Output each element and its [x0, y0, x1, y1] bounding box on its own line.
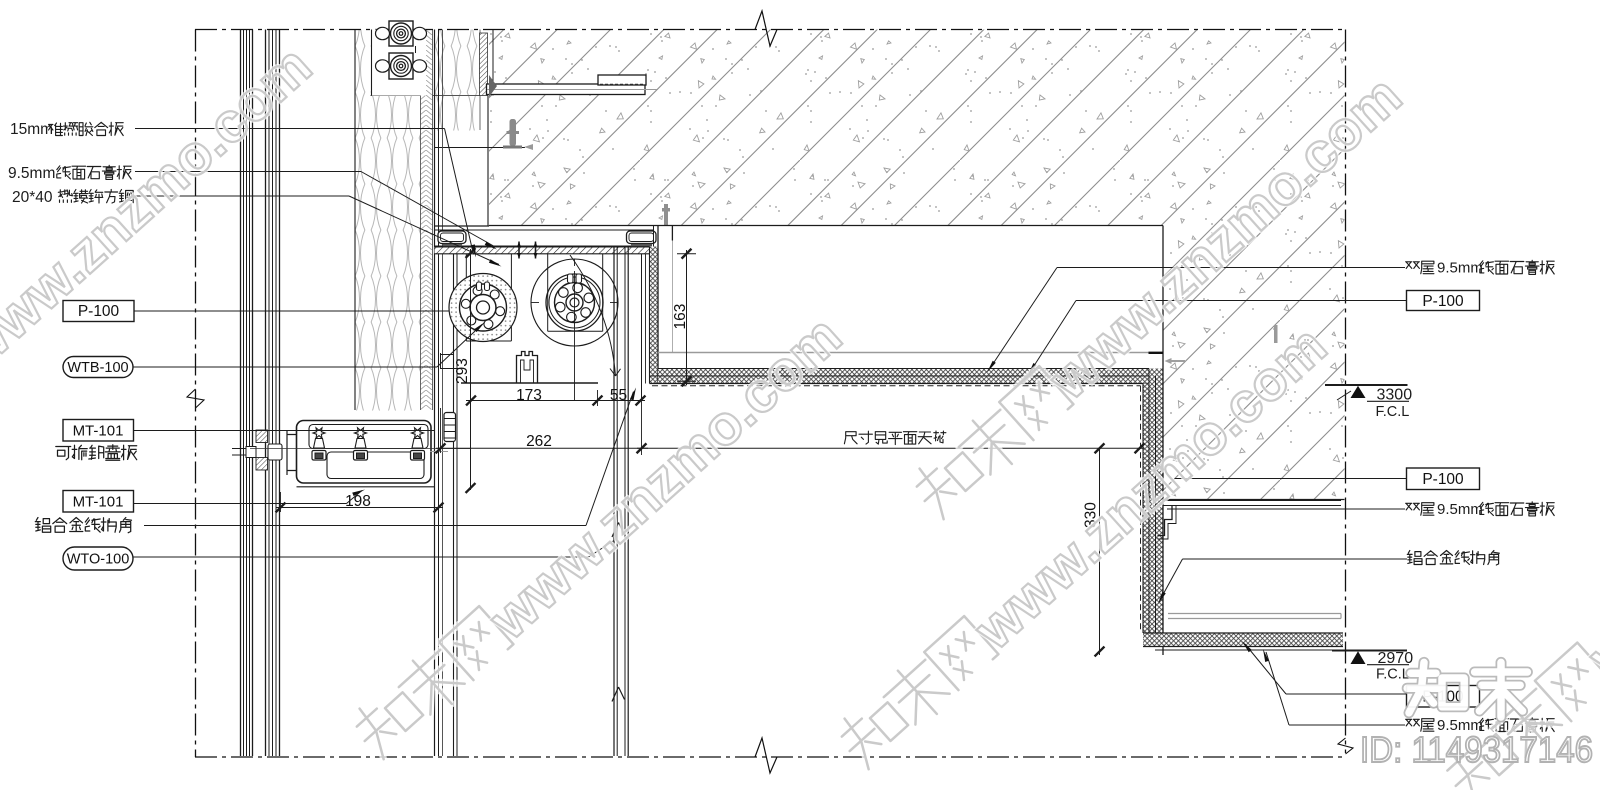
- svg-text:293: 293: [454, 358, 471, 384]
- svg-text:2970: 2970: [1378, 650, 1414, 667]
- svg-text:MT-101: MT-101: [73, 423, 124, 440]
- svg-text:3300: 3300: [1377, 387, 1413, 404]
- svg-text:P-100: P-100: [78, 303, 120, 320]
- svg-text:262: 262: [526, 433, 552, 450]
- svg-text:173: 173: [516, 387, 542, 404]
- svg-text:55: 55: [610, 387, 627, 404]
- svg-text:163: 163: [672, 304, 689, 330]
- svg-text:9.5mm: 9.5mm: [1437, 501, 1483, 518]
- svg-text:20*40: 20*40: [12, 189, 53, 206]
- svg-text:15mm: 15mm: [10, 121, 53, 138]
- svg-text:P-100: P-100: [1422, 293, 1464, 310]
- svg-text:ID: 1149317146: ID: 1149317146: [1360, 729, 1593, 770]
- svg-text:9.5mm: 9.5mm: [8, 165, 55, 182]
- svg-text:P-100: P-100: [1422, 471, 1464, 488]
- svg-text:MT-101: MT-101: [73, 494, 124, 511]
- svg-text:F.C.L: F.C.L: [1376, 404, 1410, 420]
- svg-text:F.C.L: F.C.L: [1376, 667, 1410, 683]
- svg-text:9.5mm: 9.5mm: [1437, 260, 1483, 277]
- svg-text:WTO-100: WTO-100: [67, 552, 130, 568]
- svg-text:WTB-100: WTB-100: [67, 360, 128, 376]
